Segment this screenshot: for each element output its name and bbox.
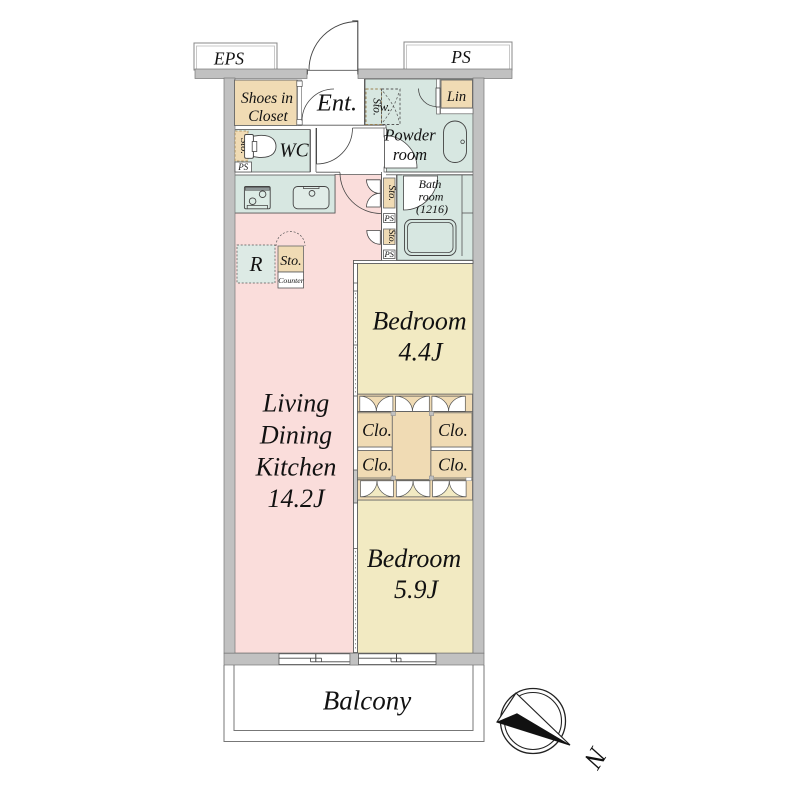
svg-text:Kitchen: Kitchen [255, 453, 337, 482]
svg-text:Powder: Powder [383, 126, 436, 145]
svg-text:PS: PS [237, 162, 248, 172]
svg-text:Sto.: Sto. [280, 254, 301, 269]
svg-text:Sto.: Sto. [386, 185, 397, 201]
svg-text:room: room [393, 145, 427, 164]
svg-text:Lin: Lin [446, 89, 466, 105]
svg-text:w.: w. [380, 99, 391, 114]
svg-text:EPS: EPS [213, 49, 244, 69]
svg-text:14.2J: 14.2J [267, 484, 326, 513]
svg-text:Shoes in: Shoes in [241, 90, 293, 107]
svg-text:Bedroom: Bedroom [372, 307, 466, 336]
svg-text:PS: PS [383, 213, 394, 223]
svg-text:Clo.: Clo. [438, 420, 468, 440]
svg-text:4.4J: 4.4J [398, 338, 444, 367]
svg-text:5.9J: 5.9J [394, 575, 440, 604]
svg-text:Sto.: Sto. [386, 229, 396, 244]
svg-text:PS: PS [383, 249, 394, 259]
svg-text:Dining: Dining [259, 421, 332, 450]
svg-text:Clo.: Clo. [438, 455, 468, 475]
svg-text:Bedroom: Bedroom [367, 544, 461, 573]
svg-text:Clo.: Clo. [362, 420, 392, 440]
svg-text:(1216): (1216) [416, 202, 448, 216]
svg-text:Closet: Closet [248, 108, 288, 125]
svg-text:Living: Living [262, 389, 329, 418]
svg-text:Counter: Counter [278, 276, 305, 285]
svg-text:WC: WC [279, 141, 309, 162]
svg-text:Ent.: Ent. [316, 90, 357, 117]
svg-text:Balcony: Balcony [323, 686, 411, 716]
svg-text:PS: PS [450, 47, 471, 67]
svg-text:Clo.: Clo. [362, 455, 392, 475]
svg-text:R: R [249, 252, 263, 276]
